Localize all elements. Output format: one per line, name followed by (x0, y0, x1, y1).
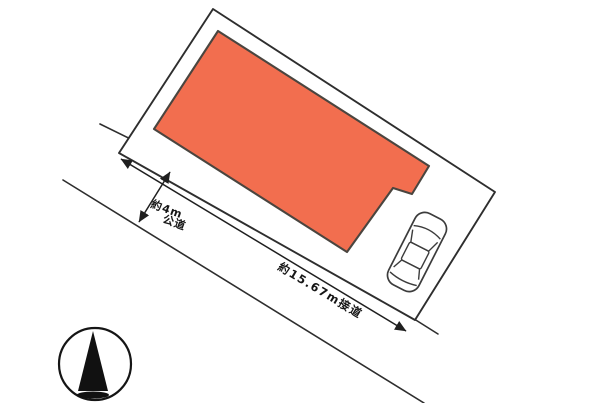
site-plan-drawing: 約4m 公道 約15.67m接道 (0, 0, 600, 403)
site-plan-canvas: 約4m 公道 約15.67m接道 (0, 0, 600, 403)
north-compass-icon (59, 328, 131, 400)
compass-base (77, 392, 109, 399)
